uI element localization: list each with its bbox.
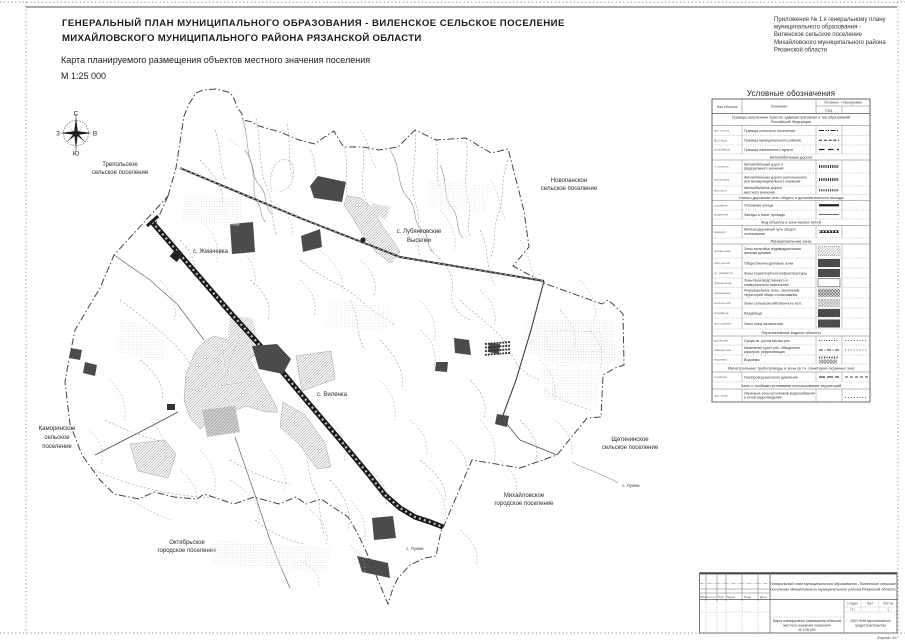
svg-text:Условные - Планируемые: Условные - Планируемые (824, 101, 862, 105)
svg-text:Наз объекта: Наз объекта (717, 105, 738, 109)
svg-text:Зоны с особыми условиями испол: Зоны с особыми условиями использования т… (741, 383, 841, 388)
svg-text:Охранные зоны источников водос: Охранные зоны источников водоснабжения (744, 391, 815, 395)
svg-text:автомобильные дороги: автомобильные дороги (744, 186, 782, 190)
svg-text:Зоны спец.назначения: Зоны спец.назначения (744, 322, 783, 326)
svg-text:в рай(он): в рай(он) (714, 375, 727, 379)
svg-text:Границы населенных пунктов, ад: Границы населенных пунктов, администрати… (732, 116, 850, 120)
svg-text:Подп.: Подп. (744, 595, 752, 599)
svg-text:Автомобильные дороги: Автомобильные дороги (770, 154, 813, 159)
svg-text:сельхоз.исп: сельхоз.исп (714, 301, 731, 305)
svg-text:обводнение: обводнение (714, 348, 731, 352)
svg-text:федерального значения: федерального значения (744, 167, 784, 171)
svg-text:и сетей водоотведения: и сетей водоотведения (744, 396, 782, 400)
svg-text:Магистральные трубопроводы и з: Магистральные трубопроводы и зоны (в т.ч… (728, 365, 855, 370)
svg-text:местного: местного (714, 188, 727, 192)
svg-text:Водоемы: Водоемы (744, 358, 760, 362)
svg-text:Зоны транспортной инфраструкту: Зоны транспортной инфраструктуры (744, 271, 807, 275)
svg-text:1: 1 (887, 608, 889, 612)
svg-text:местного значения поселения: местного значения поселения (783, 624, 830, 628)
svg-text:кладбища: кладбища (714, 311, 729, 315)
svg-text:водоемы: водоемы (714, 358, 728, 362)
svg-text:спец.назнач: спец.назнач (714, 322, 732, 326)
svg-text:Зоны сельскохозяйственного исп: Зоны сельскохозяйственного исп. (744, 301, 802, 305)
svg-text:жилыми домами: жилыми домами (744, 251, 771, 255)
svg-text:Основные улицы: Основные улицы (744, 204, 774, 208)
svg-text:Листов: Листов (883, 602, 894, 606)
svg-text:Сущ.: Сущ. (825, 109, 833, 113)
svg-text:Стадия: Стадия (847, 602, 858, 606)
svg-text:Ж/д объекты в зоне малых путей: Ж/д объекты в зоне малых путей (761, 220, 821, 225)
svg-text:Рекреационные зоны, озеленение: Рекреационные зоны, озеленение (744, 289, 800, 293)
svg-text:Существ. русла малых рек: Существ. русла малых рек (744, 339, 790, 343)
svg-text:Функциональные зоны: Функциональные зоны (771, 238, 812, 243)
svg-text:№док.: №док. (727, 595, 736, 599)
svg-text:Кол.уч: Кол.уч (707, 595, 716, 599)
svg-text:Заезды и иные проезды: Заезды и иные проезды (744, 213, 785, 217)
svg-text:№ 2-й рд: № 2-й рд (714, 138, 727, 142)
svg-text:местного значения: местного значения (744, 190, 775, 194)
svg-text:Значение: Значение (771, 105, 788, 109)
svg-text:ГП: ГП (850, 608, 855, 612)
svg-text:или межмуниципального значения: или межмуниципального значения (744, 180, 800, 184)
svg-text:Изменение русел рек, обводнени: Изменение русел рек, обводнение (744, 346, 800, 350)
svg-text:Кладбища: Кладбища (744, 311, 763, 315)
svg-text:Улично-дорожная сеть общего и: Улично-дорожная сеть общего и дополнител… (739, 195, 845, 200)
svg-text:пользования: пользования (744, 232, 765, 236)
svg-text:общ-делов: общ-делов (714, 261, 730, 265)
svg-text:Газопровод высокого давления: Газопровод высокого давления (744, 375, 798, 379)
svg-text:маршрут: маршрут (714, 230, 727, 234)
svg-text:Генеральный план муниципальног: Генеральный план муниципального образова… (770, 582, 896, 586)
svg-text:тр. инфрастр: тр. инфрастр (714, 271, 733, 275)
svg-text:Железнодорожный путь общего: Железнодорожный путь общего (744, 228, 796, 232)
svg-text:Перспективные водные объекты: Перспективные водные объекты (761, 330, 820, 335)
svg-text:охр. зоны: охр. зоны (714, 394, 728, 398)
svg-text:основная: основная (714, 203, 728, 207)
svg-text:Лист: Лист (718, 595, 725, 599)
svg-text:Автомобильный дорог и: Автомобильный дорог и (744, 162, 783, 166)
svg-text:русла рек: русла рек (714, 339, 729, 343)
svg-text:регион(ал): регион(ал) (714, 178, 729, 182)
svg-text:Лист: Лист (867, 602, 874, 606)
svg-text:Карта планируемого размещения: Карта планируемого размещения объектов (773, 619, 841, 623)
svg-text:произв.зона: произв.зона (714, 281, 732, 285)
svg-text:Граница сельского поселения: Граница сельского поселения (744, 129, 795, 133)
svg-text:территорий общего пользования: территорий общего пользования (744, 293, 797, 297)
svg-text:Граница муниципального района: Граница муниципального района (744, 139, 802, 143)
svg-text:Общественно-деловые зоны: Общественно-деловые зоны (744, 261, 794, 265)
svg-text:жилая зона: жилая зона (714, 249, 731, 253)
svg-text:карьеров, рекультивация: карьеров, рекультивация (744, 350, 785, 354)
svg-text:Дата: Дата (760, 595, 767, 599)
svg-text:Российской Федерации: Российской Федерации (771, 120, 811, 124)
svg-text:выделенн: выделенн (714, 213, 729, 217)
svg-text:устан/было: устан/было (714, 148, 731, 152)
svg-text:мог и (уст): мог и (уст) (714, 129, 729, 133)
svg-text:коммунального назначения: коммунального назначения (744, 283, 789, 287)
svg-text:рекреацион: рекреацион (714, 291, 731, 295)
svg-text:ООО НИИ перспективного: ООО НИИ перспективного (850, 619, 891, 623)
svg-text:Автомобильные дороги региональ: Автомобильные дороги регионального (744, 175, 807, 179)
svg-text:Условные обозначения: Условные обозначения (747, 89, 835, 98)
svg-text:градостроительства: градостроительства (855, 624, 886, 628)
svg-text:Зоны производственного и: Зоны производственного и (744, 279, 788, 283)
svg-text:Граница населенного пункта: Граница населенного пункта (744, 148, 794, 152)
svg-text:поселение Михайловского муници: поселение Михайловского муниципального р… (771, 588, 896, 592)
svg-text:М 1:25 000: М 1:25 000 (799, 628, 816, 632)
svg-text:ч. область: ч. область (714, 165, 729, 169)
svg-text:Зоны застройки индивидуальными: Зоны застройки индивидуальными (744, 247, 801, 251)
svg-text:Формат А1: Формат А1 (877, 635, 898, 640)
